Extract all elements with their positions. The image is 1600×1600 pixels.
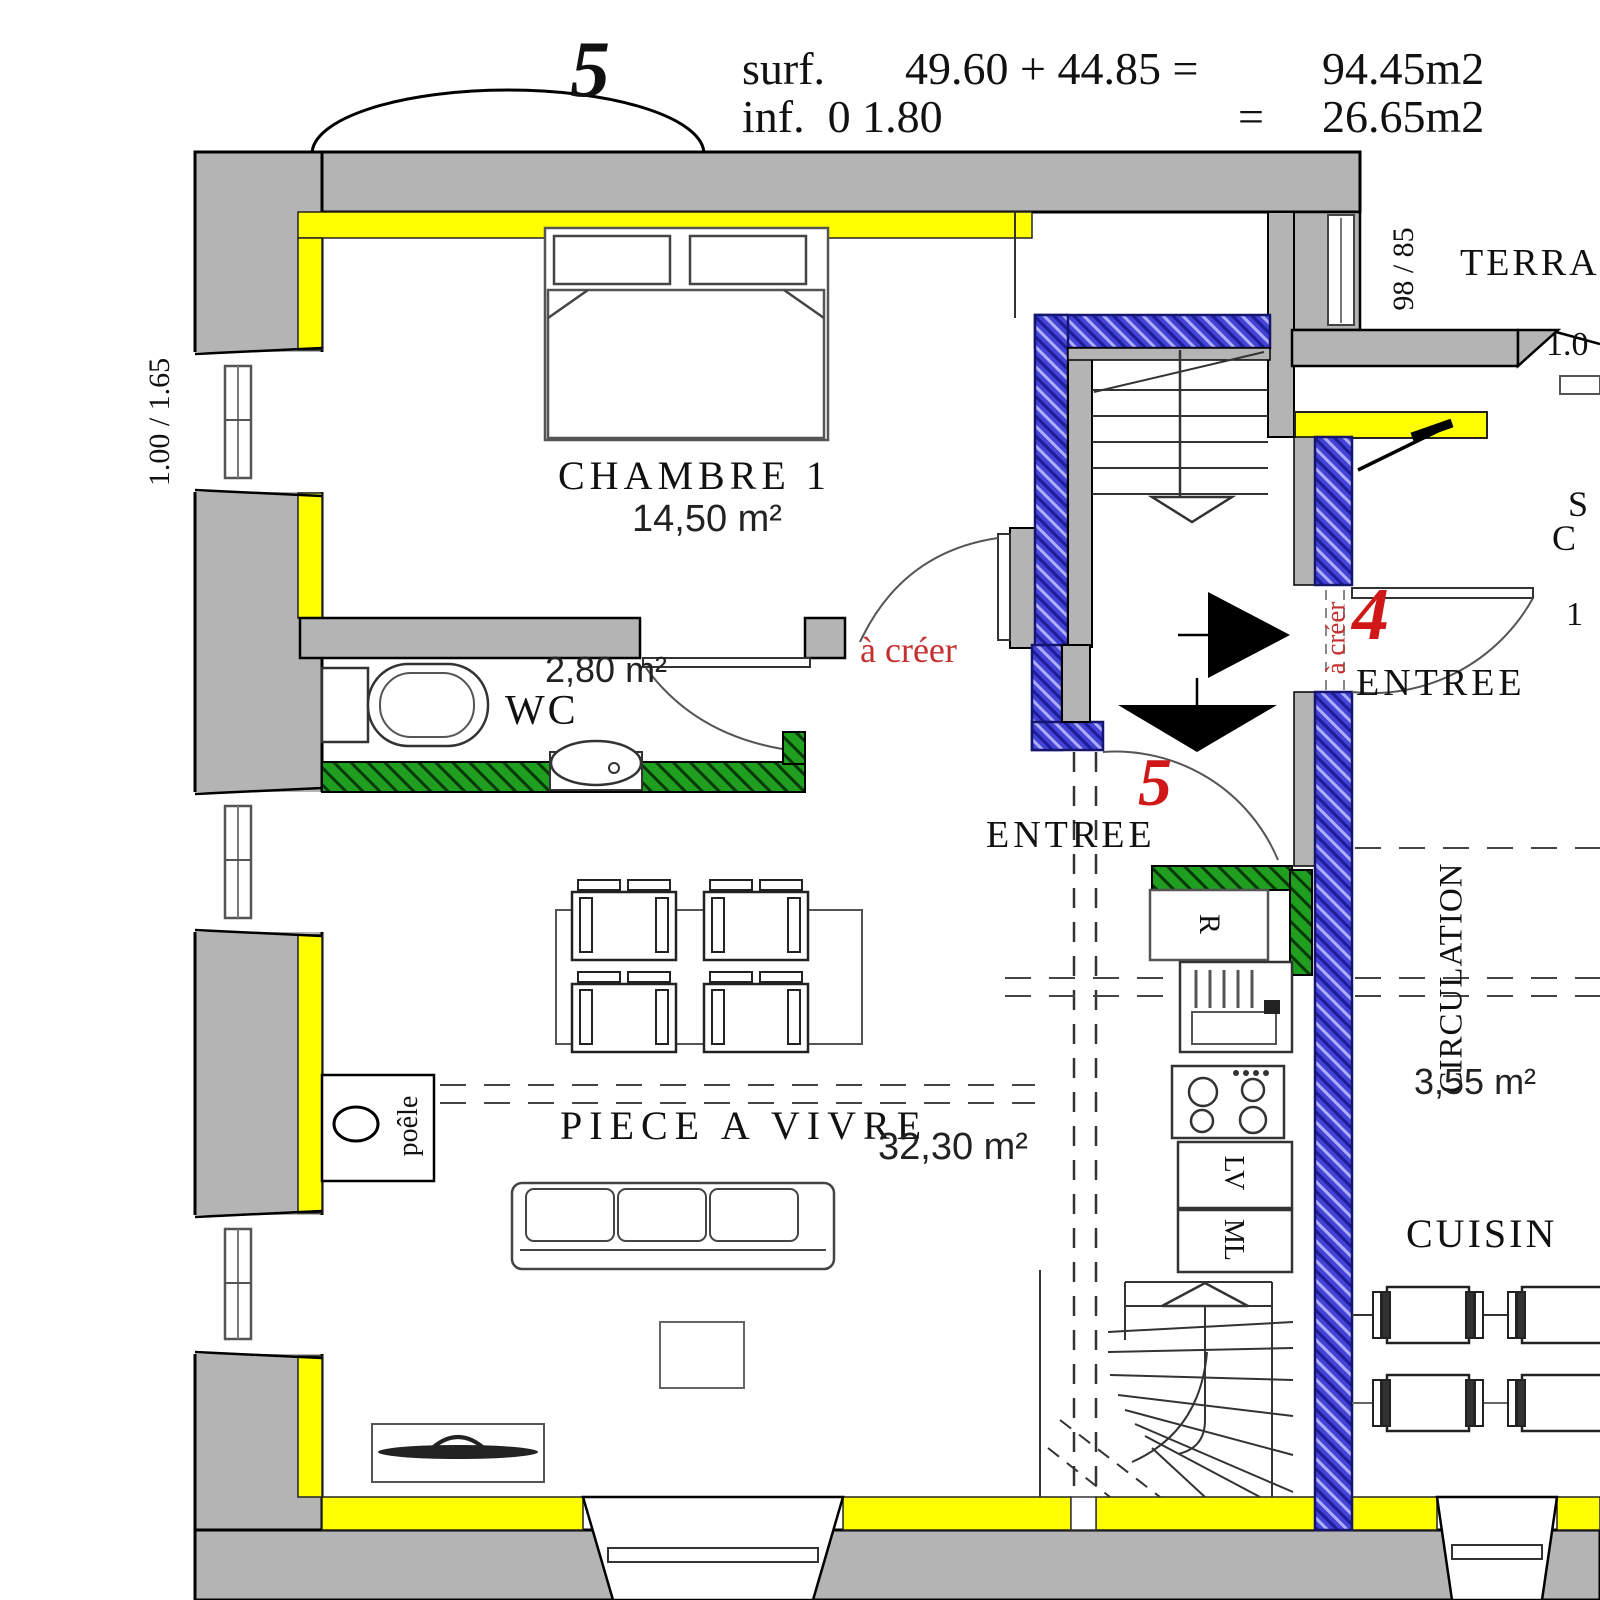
room-wc-area: 2,80 m² xyxy=(545,652,667,688)
room-chambre1-area: 14,50 m² xyxy=(632,500,782,538)
left-window-dimension: 1.00 / 1.65 xyxy=(145,358,175,486)
inf-equals: = xyxy=(1238,94,1264,140)
window-left-3 xyxy=(193,1211,324,1358)
edge-fragment-s: S xyxy=(1568,486,1588,522)
fridge-label: R xyxy=(1194,914,1224,934)
cuisine-chairs xyxy=(1352,1287,1600,1431)
stair-upper xyxy=(1035,315,1270,647)
inf-label: inf. 0 1.80 xyxy=(742,94,943,140)
room-chambre1-label: CHAMBRE 1 xyxy=(558,456,831,496)
direction-arrows xyxy=(1118,592,1290,752)
surface-expression: 49.60 + 44.85 = xyxy=(905,46,1198,92)
floor-plan-drawing xyxy=(0,0,1600,1600)
room-piece-a-vivre-area: 32,30 m² xyxy=(878,1128,1028,1166)
stair-down-arrow xyxy=(1152,497,1232,522)
wc-door-arc xyxy=(646,668,805,752)
room-cuisine-label: CUISIN xyxy=(1406,1214,1557,1254)
pillow xyxy=(690,236,806,284)
edge-fragment-1: 1 xyxy=(1566,598,1583,632)
chambre-door xyxy=(860,212,1038,648)
terrace-window-dimension: 98 / 85 xyxy=(1389,227,1419,310)
surface-label: surf. xyxy=(742,46,825,92)
unit4-number: 4 xyxy=(1352,578,1389,652)
entry5-new-wall xyxy=(1032,645,1103,750)
entree4-label: ENTREE xyxy=(1356,664,1526,702)
bay-arc xyxy=(312,90,704,154)
corridor-door-notch xyxy=(1071,1497,1096,1530)
exterior-walls xyxy=(195,90,1600,1600)
surface-total: 94.45m2 xyxy=(1322,46,1484,92)
chambre-door-leaf xyxy=(998,534,1010,640)
floor-plan-page: 5 surf. 49.60 + 44.85 = 94.45m2 inf. 0 1… xyxy=(0,0,1600,1600)
living-furniture xyxy=(322,880,862,1482)
inf-total: 26.65m2 xyxy=(1322,94,1484,140)
room-circulation-label: CIRCULATION xyxy=(1436,863,1469,1094)
room-wc-label: WC xyxy=(505,690,579,732)
stair-up-arrow xyxy=(1162,1283,1248,1306)
toilet-tank xyxy=(322,668,368,742)
wc-sink xyxy=(551,741,641,785)
hob xyxy=(1172,1066,1284,1138)
room-circulation-area: 3,55 m² xyxy=(1414,1064,1536,1100)
kitchen-units xyxy=(1150,890,1292,1272)
room-terrasse-label: TERRA xyxy=(1460,244,1600,282)
pillow xyxy=(554,236,670,284)
edge-fragment-c: C xyxy=(1552,520,1576,556)
window-left-1 xyxy=(193,348,324,496)
sink-unit xyxy=(1180,962,1292,1052)
room-piece-a-vivre-label: PIECE A VIVRE xyxy=(560,1106,928,1146)
arrow-right xyxy=(1208,592,1290,678)
blanket xyxy=(548,290,824,438)
window-left-2 xyxy=(193,788,324,936)
annotation-a-creer-wall: à créer xyxy=(1323,602,1350,675)
wc-door-leaf xyxy=(643,658,810,667)
toilet-bowl xyxy=(368,664,488,746)
unit5-number: 5 xyxy=(1138,748,1172,816)
chambre-door-arc xyxy=(860,538,998,642)
terrace-dimension: 1.0 xyxy=(1546,328,1589,362)
annotation-a-creer-door: à créer xyxy=(860,632,957,668)
stair-lower xyxy=(1040,1270,1293,1497)
stove-label: poêle xyxy=(395,1096,423,1157)
entree5-label: ENTREE xyxy=(986,816,1156,854)
washer-label: ML xyxy=(1219,1219,1247,1261)
unit-number-header: 5 xyxy=(570,30,610,110)
bed xyxy=(545,228,828,440)
radiator xyxy=(372,1424,544,1482)
dishwasher-label: LV xyxy=(1219,1156,1247,1191)
coffee-table xyxy=(660,1322,744,1388)
sofa xyxy=(512,1183,834,1269)
